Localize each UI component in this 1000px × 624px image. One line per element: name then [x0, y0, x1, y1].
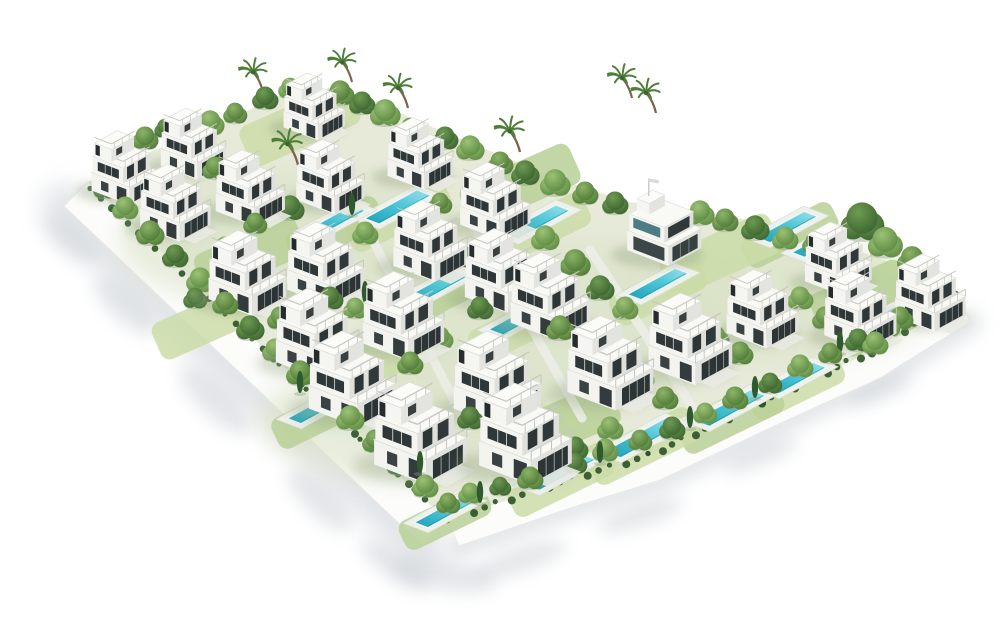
tree [572, 181, 598, 205]
palm-tree [328, 49, 355, 82]
render-viewport [0, 0, 1000, 624]
tree [252, 86, 278, 110]
buildings-and-planting-layer [76, 49, 973, 515]
palm-tree [632, 79, 660, 113]
palm-tree [495, 116, 524, 152]
tree [712, 208, 738, 232]
tree [223, 103, 247, 125]
palm-tree [608, 64, 636, 98]
villa-development-aerial-render [0, 0, 1000, 624]
